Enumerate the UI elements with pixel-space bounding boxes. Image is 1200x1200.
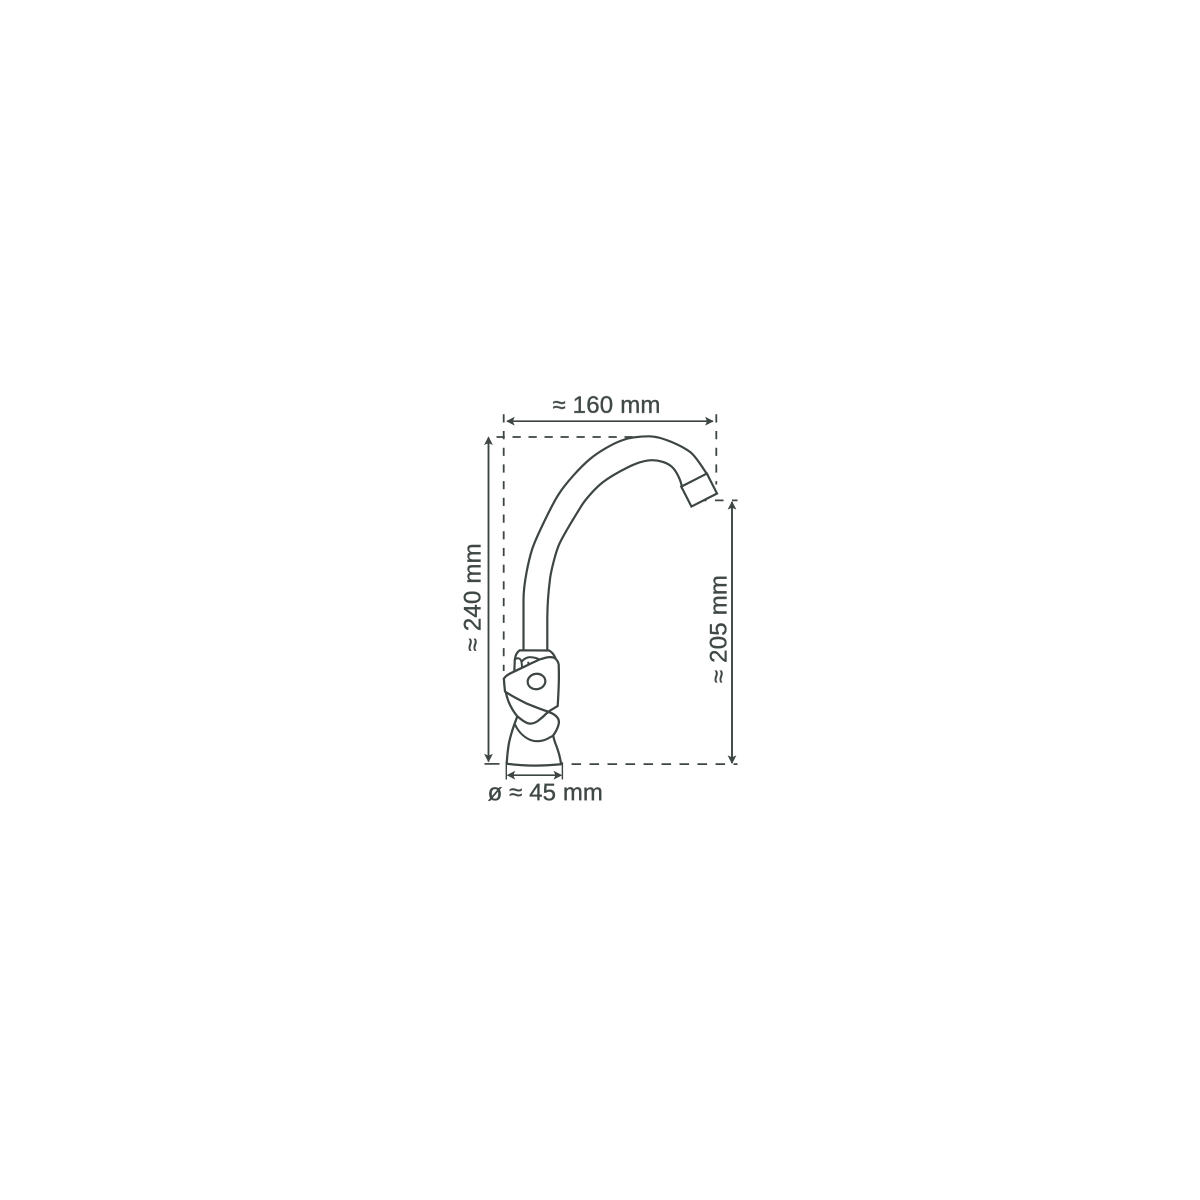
svg-text:≈ 240 mm: ≈ 240 mm	[460, 543, 487, 651]
svg-text:≈ 160 mm: ≈ 160 mm	[552, 392, 660, 419]
svg-text:ø ≈ 45 mm: ø ≈ 45 mm	[488, 779, 603, 806]
svg-text:≈ 205 mm: ≈ 205 mm	[706, 575, 733, 683]
